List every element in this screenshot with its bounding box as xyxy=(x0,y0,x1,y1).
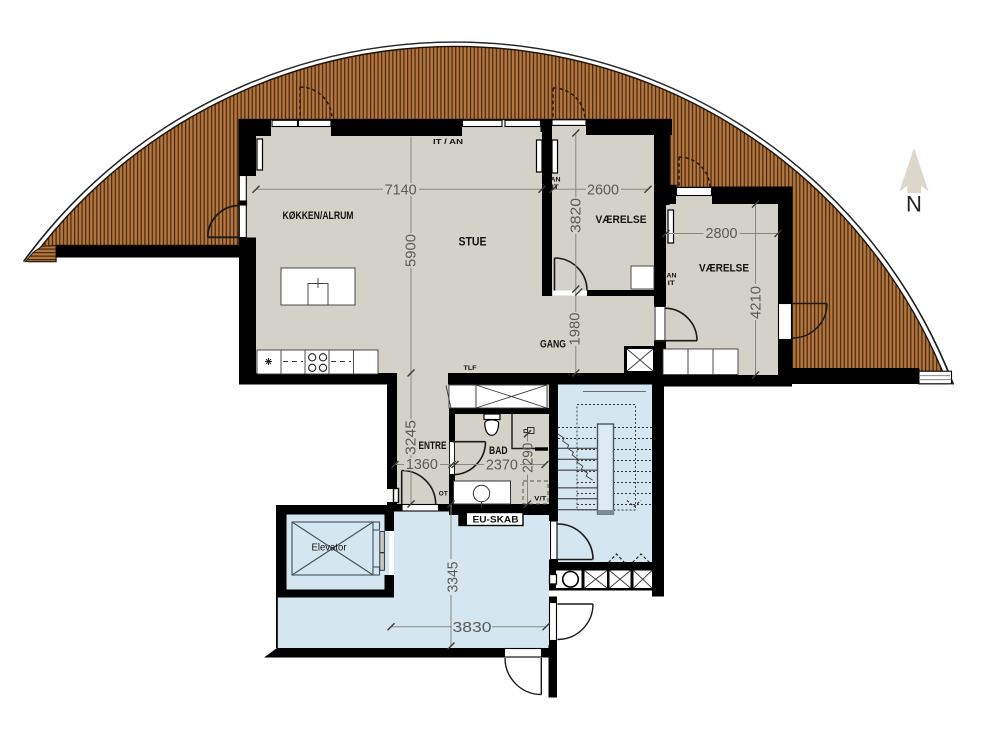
svg-text:STUE: STUE xyxy=(459,237,487,249)
svg-text:EU-SKAB: EU-SKAB xyxy=(473,515,519,526)
svg-text:TLF: TLF xyxy=(464,365,477,372)
svg-text:N: N xyxy=(906,192,922,217)
svg-text:BAD: BAD xyxy=(489,445,508,457)
svg-text:2290: 2290 xyxy=(520,443,536,473)
svg-text:1980: 1980 xyxy=(567,312,583,345)
svg-text:3820: 3820 xyxy=(568,198,584,233)
svg-text:3345: 3345 xyxy=(446,561,462,592)
svg-text:GANG: GANG xyxy=(540,339,566,351)
svg-text:7140: 7140 xyxy=(385,183,417,199)
svg-text:5900: 5900 xyxy=(403,234,419,267)
svg-text:VÆRELSE: VÆRELSE xyxy=(596,214,647,226)
svg-text:1360: 1360 xyxy=(406,457,438,473)
svg-text:KØKKEN/ALRUM: KØKKEN/ALRUM xyxy=(283,210,354,222)
svg-text:AN: AN xyxy=(551,177,561,184)
svg-text:IT: IT xyxy=(668,280,676,287)
svg-text:IT: IT xyxy=(552,184,560,191)
svg-text:AN: AN xyxy=(667,273,677,280)
svg-text:IT / AN: IT / AN xyxy=(433,139,463,146)
svg-text:V/T: V/T xyxy=(534,495,547,502)
svg-text:2600: 2600 xyxy=(587,183,619,199)
svg-text:4210: 4210 xyxy=(748,286,764,319)
svg-text:Elevator: Elevator xyxy=(312,542,348,553)
svg-text:3245: 3245 xyxy=(403,420,419,455)
svg-text:VÆRELSE: VÆRELSE xyxy=(699,262,749,274)
svg-text:ENTRE: ENTRE xyxy=(419,440,447,452)
svg-text:2800: 2800 xyxy=(706,226,738,242)
svg-text:2370: 2370 xyxy=(486,457,518,473)
svg-text:OT: OT xyxy=(439,490,449,497)
svg-text:3830: 3830 xyxy=(453,620,492,636)
